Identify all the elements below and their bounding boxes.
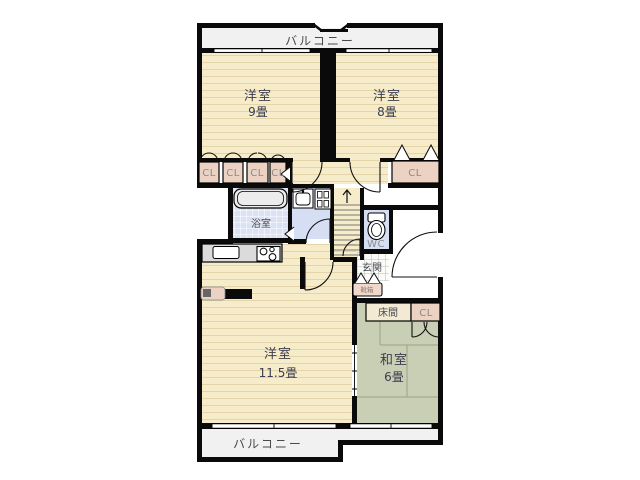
wall-segment (336, 158, 350, 162)
closet-right-label: CL (408, 168, 422, 179)
washitsu-label: 和室 (380, 352, 408, 368)
closet-label: CL (271, 168, 285, 179)
sliding-door-washitsu (352, 345, 357, 396)
shelf-icon (203, 289, 211, 297)
balcony-bottom-label: バルコニー (233, 437, 303, 451)
wall-segment (197, 183, 293, 188)
entrance-door-arc (392, 232, 437, 277)
wall-segment (388, 183, 443, 188)
balcony-top-label: バルコニー (285, 34, 355, 48)
bedroom8-label: 洋室 (373, 88, 401, 104)
wall-segment (228, 238, 292, 243)
wall-segment (333, 257, 353, 262)
wall-segment (389, 210, 393, 254)
wall-segment (338, 440, 443, 445)
wall-segment (300, 257, 305, 289)
closet-label: CL (250, 168, 264, 179)
bath-label: 浴室 (251, 217, 271, 230)
wall-segment (288, 239, 306, 244)
wall-segment (347, 23, 443, 28)
wall-segment (438, 23, 443, 233)
stove-icon (257, 247, 280, 262)
bedroom9-label: 洋室 (244, 88, 272, 104)
wall-segment (360, 205, 443, 210)
bedroom9-size: 9畳 (248, 105, 268, 119)
living-size: 11.5畳 (259, 366, 298, 380)
genkan-label: 玄関 (362, 261, 382, 274)
closet-washitsu-label: CL (419, 308, 433, 319)
closet-label: CL (202, 168, 216, 179)
shoebox-label: 靴箱 (361, 285, 375, 294)
floor-plan-svg: バルコニー 洋室 9畳 洋室 8畳 CL CL CL CL CL 浴室 WC 玄… (0, 0, 640, 480)
kitchen-counter-bar (224, 289, 252, 299)
washer-pan-icon (315, 189, 331, 209)
floor-plan-page: バルコニー 洋室 9畳 洋室 8畳 CL CL CL CL CL 浴室 WC 玄… (0, 0, 640, 480)
wall-segment (356, 298, 443, 303)
wall-bedroom-divider (320, 48, 336, 162)
closet-label: CL (226, 168, 240, 179)
kitchen-sink-icon (213, 247, 239, 259)
wall-segment (352, 396, 357, 425)
wall-segment (352, 298, 357, 345)
wall-segment (197, 23, 315, 28)
living-label: 洋室 (264, 346, 292, 362)
bedroom8-size: 8畳 (377, 105, 397, 119)
wc-label: WC (367, 239, 385, 250)
wall-segment (197, 158, 293, 162)
wall-segment (197, 457, 343, 462)
living-floor (202, 244, 352, 423)
wall-segment (228, 185, 233, 243)
kitchen-counter (202, 244, 282, 262)
bathtub-icon (234, 189, 287, 208)
tokonoma-label: 床間 (378, 306, 398, 319)
wall-segment (197, 239, 233, 244)
toilet-icon (368, 213, 385, 240)
washitsu-size: 6畳 (384, 370, 404, 384)
